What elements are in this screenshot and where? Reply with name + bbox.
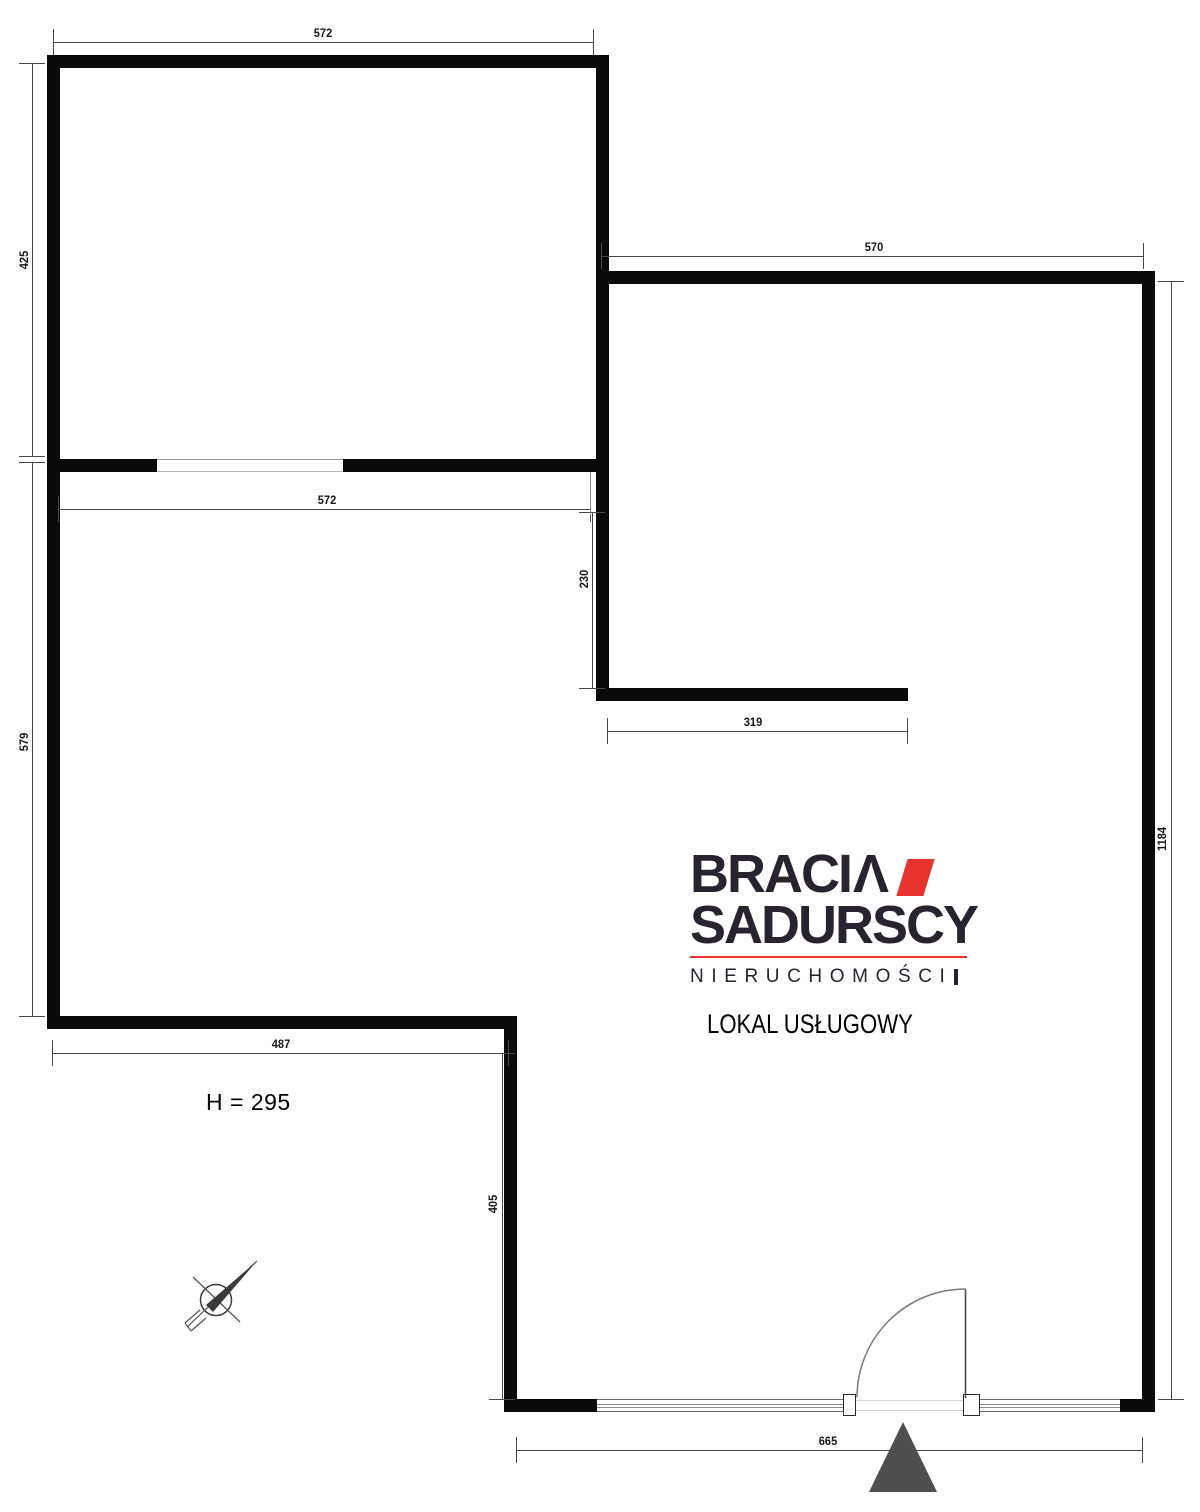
dimension-tick xyxy=(19,456,45,457)
dim-label-405: 405 xyxy=(486,1195,500,1213)
dim-label-1184: 1184 xyxy=(1155,827,1169,851)
listing-type-label: LOKAL USŁUGOWY xyxy=(707,1009,939,1040)
dim-label-487: 487 xyxy=(272,1037,290,1051)
dim-label-579: 579 xyxy=(17,733,31,751)
dimension-line xyxy=(1171,281,1172,1399)
brand-line-1: BRACI Λ xyxy=(690,851,990,897)
window xyxy=(980,1399,1120,1412)
dimension-tick xyxy=(489,1053,515,1054)
window-pane-line xyxy=(597,1407,846,1408)
brand-divider xyxy=(690,956,967,959)
wall xyxy=(609,271,1155,284)
dimension-line xyxy=(516,1450,1142,1451)
dim-label-570: 570 xyxy=(865,240,883,254)
dimension-tick xyxy=(19,1016,45,1017)
ceiling-height-label: H = 295 xyxy=(206,1089,291,1116)
dimension-line xyxy=(52,1053,508,1054)
dimension-tick xyxy=(579,688,605,689)
dimension-tick xyxy=(52,1040,53,1066)
door-post xyxy=(963,1394,980,1416)
window xyxy=(597,1399,846,1412)
brand-word-sadurscy: SADURSCY xyxy=(690,902,990,948)
window-pane-line xyxy=(980,1404,1120,1405)
passage xyxy=(157,459,343,472)
dimension-line xyxy=(502,1053,503,1399)
wall xyxy=(596,55,609,701)
wall xyxy=(1142,271,1155,1412)
brand-logo: BRACI Λ SADURSCY NIERUCHOMOŚCI LOKAL USŁ… xyxy=(690,851,990,1040)
floor-plan-page: 5724255705725792303191184487405665 BRACI… xyxy=(0,0,1200,1512)
wall xyxy=(504,1029,517,1412)
brand-tagline-bar xyxy=(954,969,958,985)
dimension-tick xyxy=(593,29,594,55)
dimension-tick xyxy=(1142,1437,1143,1463)
dimension-tick xyxy=(601,243,602,269)
dimension-tick xyxy=(1143,243,1144,269)
dimension-tick xyxy=(1158,1399,1184,1400)
door-post xyxy=(843,1394,856,1416)
wall xyxy=(47,55,608,68)
brand-caret: Λ xyxy=(853,851,889,897)
dimension-tick xyxy=(58,496,59,522)
threshold xyxy=(856,1400,963,1411)
window-pane-line xyxy=(597,1404,846,1405)
dimension-line xyxy=(32,63,33,456)
dimension-tick xyxy=(1158,281,1184,282)
dimension-tick xyxy=(489,1399,515,1400)
wall xyxy=(47,1016,517,1029)
brand-word-bracia: BRACI xyxy=(690,851,851,897)
wall xyxy=(1120,1399,1142,1412)
wall xyxy=(343,459,596,472)
floor-plan: 5724255705725792303191184487405665 xyxy=(0,0,1200,1512)
window-pane-line xyxy=(980,1407,1120,1408)
dim-label-319: 319 xyxy=(744,715,762,729)
wall xyxy=(596,688,908,701)
dimension-line xyxy=(592,512,593,688)
dimension-tick xyxy=(579,512,605,513)
dimension-tick xyxy=(607,718,608,744)
dimension-line xyxy=(607,731,907,732)
dim-label-572: 572 xyxy=(314,26,332,40)
dimension-tick xyxy=(516,1437,517,1463)
dimension-tick xyxy=(19,462,45,463)
dimension-tick xyxy=(53,29,54,55)
wall xyxy=(47,55,60,1029)
brand-red-parallelogram-icon xyxy=(896,859,934,896)
dimension-line xyxy=(58,509,590,510)
extension-line xyxy=(590,472,591,516)
dim-label-230: 230 xyxy=(577,570,591,588)
brand-tagline-text: NIERUCHOMOŚCI xyxy=(690,966,952,988)
brand-tagline: NIERUCHOMOŚCI xyxy=(690,966,990,988)
dim-label-572: 572 xyxy=(318,493,336,507)
dimension-line xyxy=(32,462,33,1016)
dimension-tick xyxy=(907,718,908,744)
wall xyxy=(60,459,157,472)
dimension-tick xyxy=(19,63,45,64)
dimension-line xyxy=(53,42,593,43)
dim-label-425: 425 xyxy=(17,251,31,269)
dim-label-665: 665 xyxy=(819,1434,837,1448)
wall xyxy=(517,1399,597,1412)
dimension-line xyxy=(601,256,1143,257)
